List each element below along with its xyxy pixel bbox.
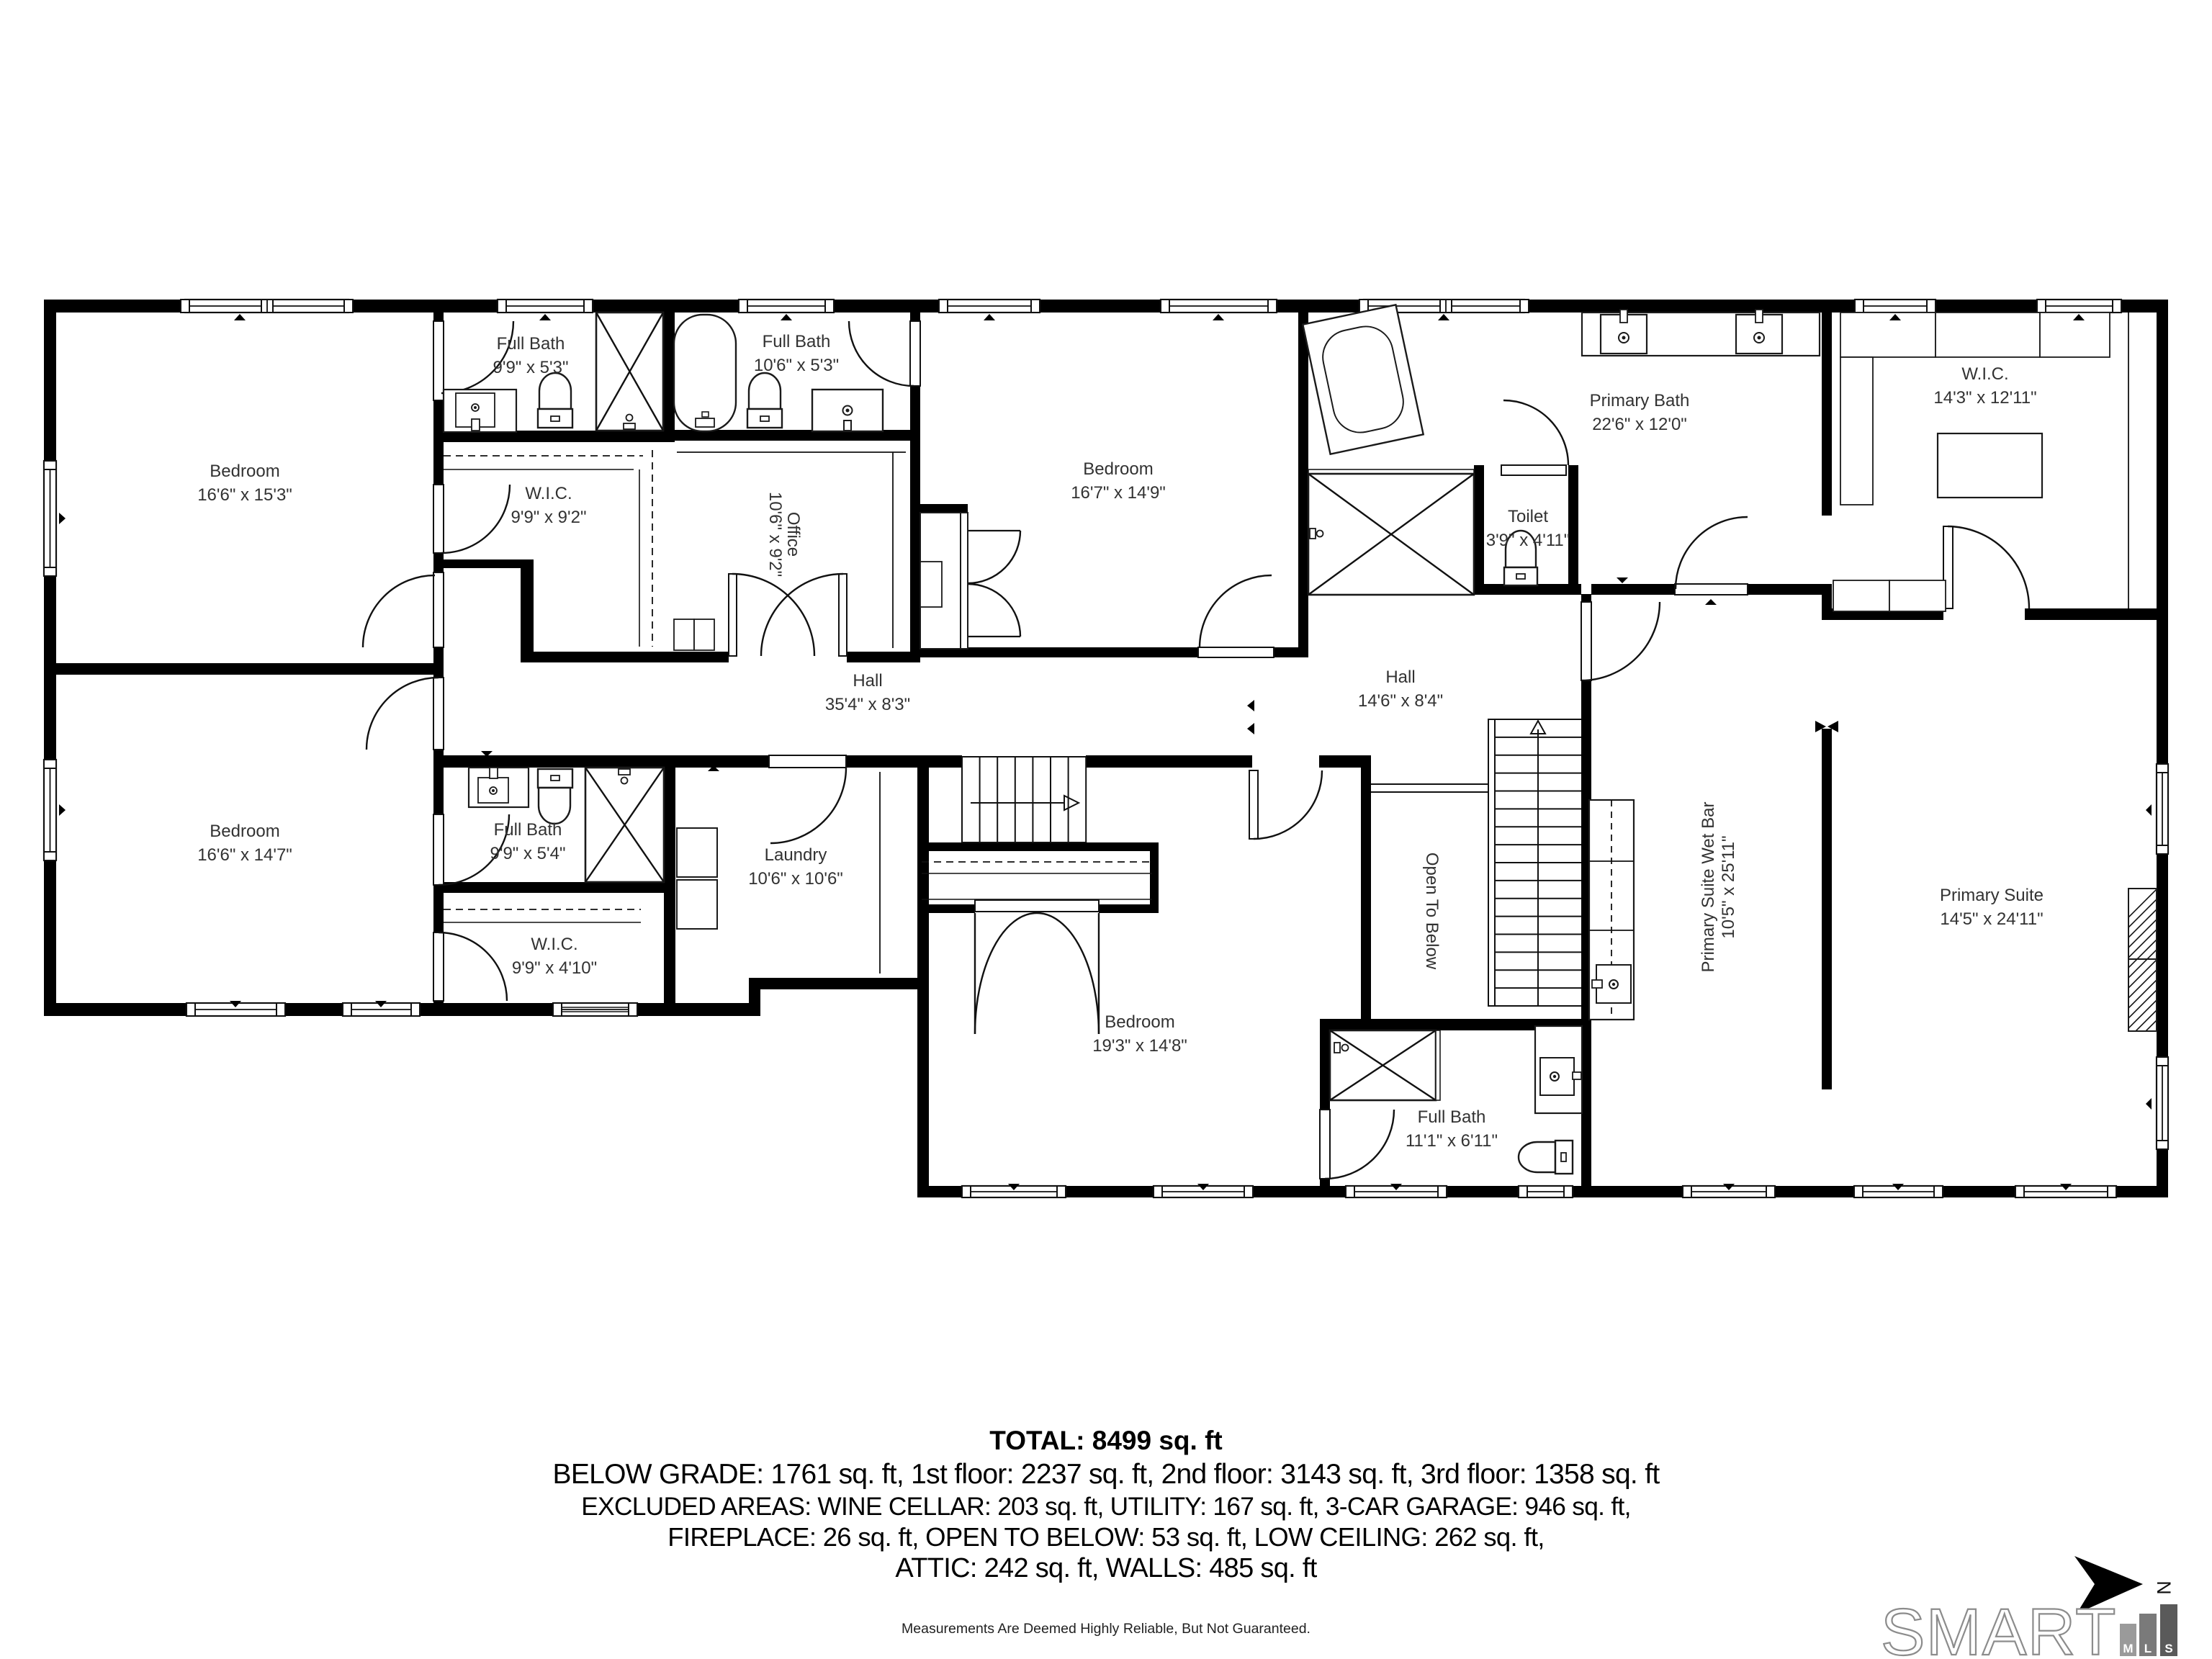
svg-text:Toilet: Toilet [1508, 507, 1548, 526]
svg-text:16'6" x 14'7": 16'6" x 14'7" [197, 845, 292, 865]
svg-text:9'9" x 4'10": 9'9" x 4'10" [512, 958, 597, 978]
svg-text:Hall: Hall [853, 671, 882, 691]
svg-text:Bedroom: Bedroom [210, 462, 279, 481]
svg-text:19'3" x 14'8": 19'3" x 14'8" [1092, 1036, 1187, 1056]
svg-text:W.I.C.: W.I.C. [1961, 364, 2008, 384]
svg-text:ATTIC: 242 sq. ft, WALLS: 485: ATTIC: 242 sq. ft, WALLS: 485 sq. ft [895, 1553, 1317, 1583]
svg-text:Open To Below: Open To Below [1422, 853, 1442, 970]
svg-text:10'6" x 9'2": 10'6" x 9'2" [765, 492, 785, 577]
svg-text:L: L [2144, 1642, 2152, 1655]
svg-text:3'9" x 4'11": 3'9" x 4'11" [1486, 531, 1570, 550]
svg-text:Full Bath: Full Bath [497, 334, 565, 354]
svg-text:Bedroom: Bedroom [1105, 1012, 1174, 1032]
svg-text:Office: Office [783, 512, 803, 557]
svg-text:BELOW GRADE: 1761 sq. ft, 1st: BELOW GRADE: 1761 sq. ft, 1st floor: 223… [553, 1459, 1660, 1490]
svg-text:FIREPLACE: 26 sq. ft, OPEN TO: FIREPLACE: 26 sq. ft, OPEN TO BELOW: 53 … [667, 1522, 1544, 1552]
svg-text:Laundry: Laundry [765, 845, 827, 865]
svg-text:S: S [2164, 1642, 2172, 1655]
svg-text:10'6" x 10'6": 10'6" x 10'6" [748, 869, 843, 889]
svg-text:Bedroom: Bedroom [1083, 459, 1153, 479]
svg-text:14'3" x 12'11": 14'3" x 12'11" [1933, 388, 2036, 408]
svg-text:9'9" x 5'3": 9'9" x 5'3" [493, 358, 569, 377]
svg-text:Measurements Are Deemed Highly: Measurements Are Deemed Highly Reliable,… [902, 1621, 1310, 1637]
svg-text:Primary Suite Wet Bar: Primary Suite Wet Bar [1699, 802, 1718, 973]
svg-text:Primary Bath: Primary Bath [1590, 391, 1690, 410]
svg-text:EXCLUDED AREAS: WINE CELLAR: 2: EXCLUDED AREAS: WINE CELLAR: 203 sq. ft,… [581, 1493, 1630, 1521]
svg-text:22'6" x 12'0": 22'6" x 12'0" [1592, 415, 1687, 434]
svg-text:Primary Suite: Primary Suite [1940, 886, 2044, 905]
svg-text:Hall: Hall [1385, 667, 1415, 687]
svg-text:W.I.C.: W.I.C. [531, 935, 577, 954]
svg-text:35'4" x 8'3": 35'4" x 8'3" [825, 695, 910, 714]
svg-text:16'6" x 15'3": 16'6" x 15'3" [197, 485, 292, 505]
svg-text:TOTAL: 8499 sq. ft: TOTAL: 8499 sq. ft [989, 1426, 1222, 1455]
svg-text:Bedroom: Bedroom [210, 822, 279, 841]
svg-text:W.I.C.: W.I.C. [525, 484, 572, 503]
svg-text:N: N [2153, 1581, 2175, 1595]
svg-text:14'6" x 8'4": 14'6" x 8'4" [1358, 691, 1443, 711]
svg-text:11'1" x 6'11": 11'1" x 6'11" [1406, 1131, 1498, 1151]
svg-text:Full Bath: Full Bath [763, 332, 831, 351]
svg-text:10'6" x 5'3": 10'6" x 5'3" [754, 356, 839, 375]
svg-text:Full Bath: Full Bath [494, 820, 562, 840]
svg-text:16'7" x 14'9": 16'7" x 14'9" [1071, 483, 1166, 503]
svg-text:SMART: SMART [1881, 1596, 2117, 1659]
svg-text:14'5" x 24'11": 14'5" x 24'11" [1940, 909, 2043, 929]
svg-text:M: M [2123, 1642, 2133, 1655]
svg-text:9'9" x 5'4": 9'9" x 5'4" [490, 844, 566, 863]
svg-text:9'9" x 9'2": 9'9" x 9'2" [511, 508, 587, 527]
svg-text:Full Bath: Full Bath [1418, 1107, 1486, 1127]
svg-text:10'5" x 25'11": 10'5" x 25'11" [1719, 835, 1738, 938]
